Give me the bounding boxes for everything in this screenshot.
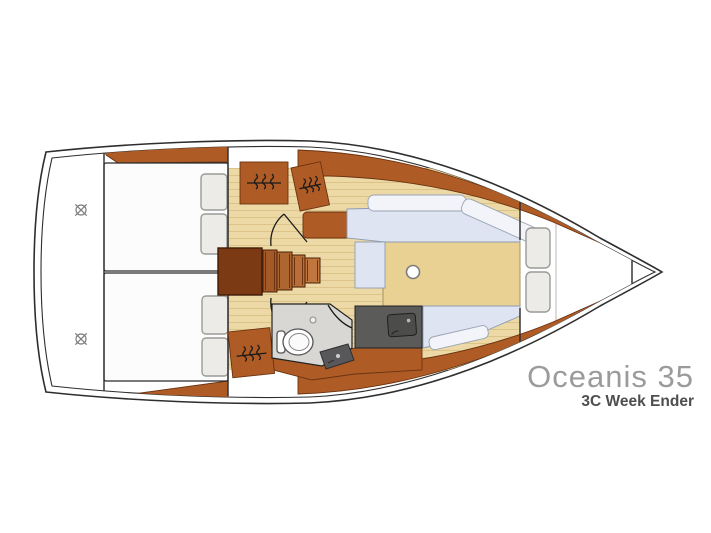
mast-post: [407, 266, 420, 279]
wardrobe-head: [228, 328, 275, 378]
pillow: [526, 228, 550, 268]
boat-floor-plan: Oceanis 35 3C Week Ender: [0, 0, 711, 533]
galley-sink: [387, 313, 416, 337]
settee-chaise: [355, 242, 385, 288]
wardrobe-port: [240, 162, 288, 204]
toilet: [277, 329, 313, 355]
pillow: [202, 338, 228, 376]
floor-plan-canvas: Oceanis 35 3C Week Ender: [0, 0, 711, 533]
model-name: Oceanis 35: [527, 359, 694, 394]
back-cushion: [368, 195, 466, 211]
step: [292, 255, 305, 287]
step: [218, 248, 262, 295]
pillow: [201, 174, 227, 210]
shower-drain: [310, 317, 316, 323]
chart-locker: [303, 212, 353, 238]
variant-name: 3C Week Ender: [581, 393, 694, 410]
aft-cabin-starboard: [104, 273, 228, 381]
pillow: [202, 296, 228, 334]
aft-cabin-port: [104, 163, 228, 271]
saloon-table: [383, 239, 520, 307]
galley: [355, 306, 422, 348]
pillow: [526, 272, 550, 312]
head-compartment: [272, 304, 354, 369]
